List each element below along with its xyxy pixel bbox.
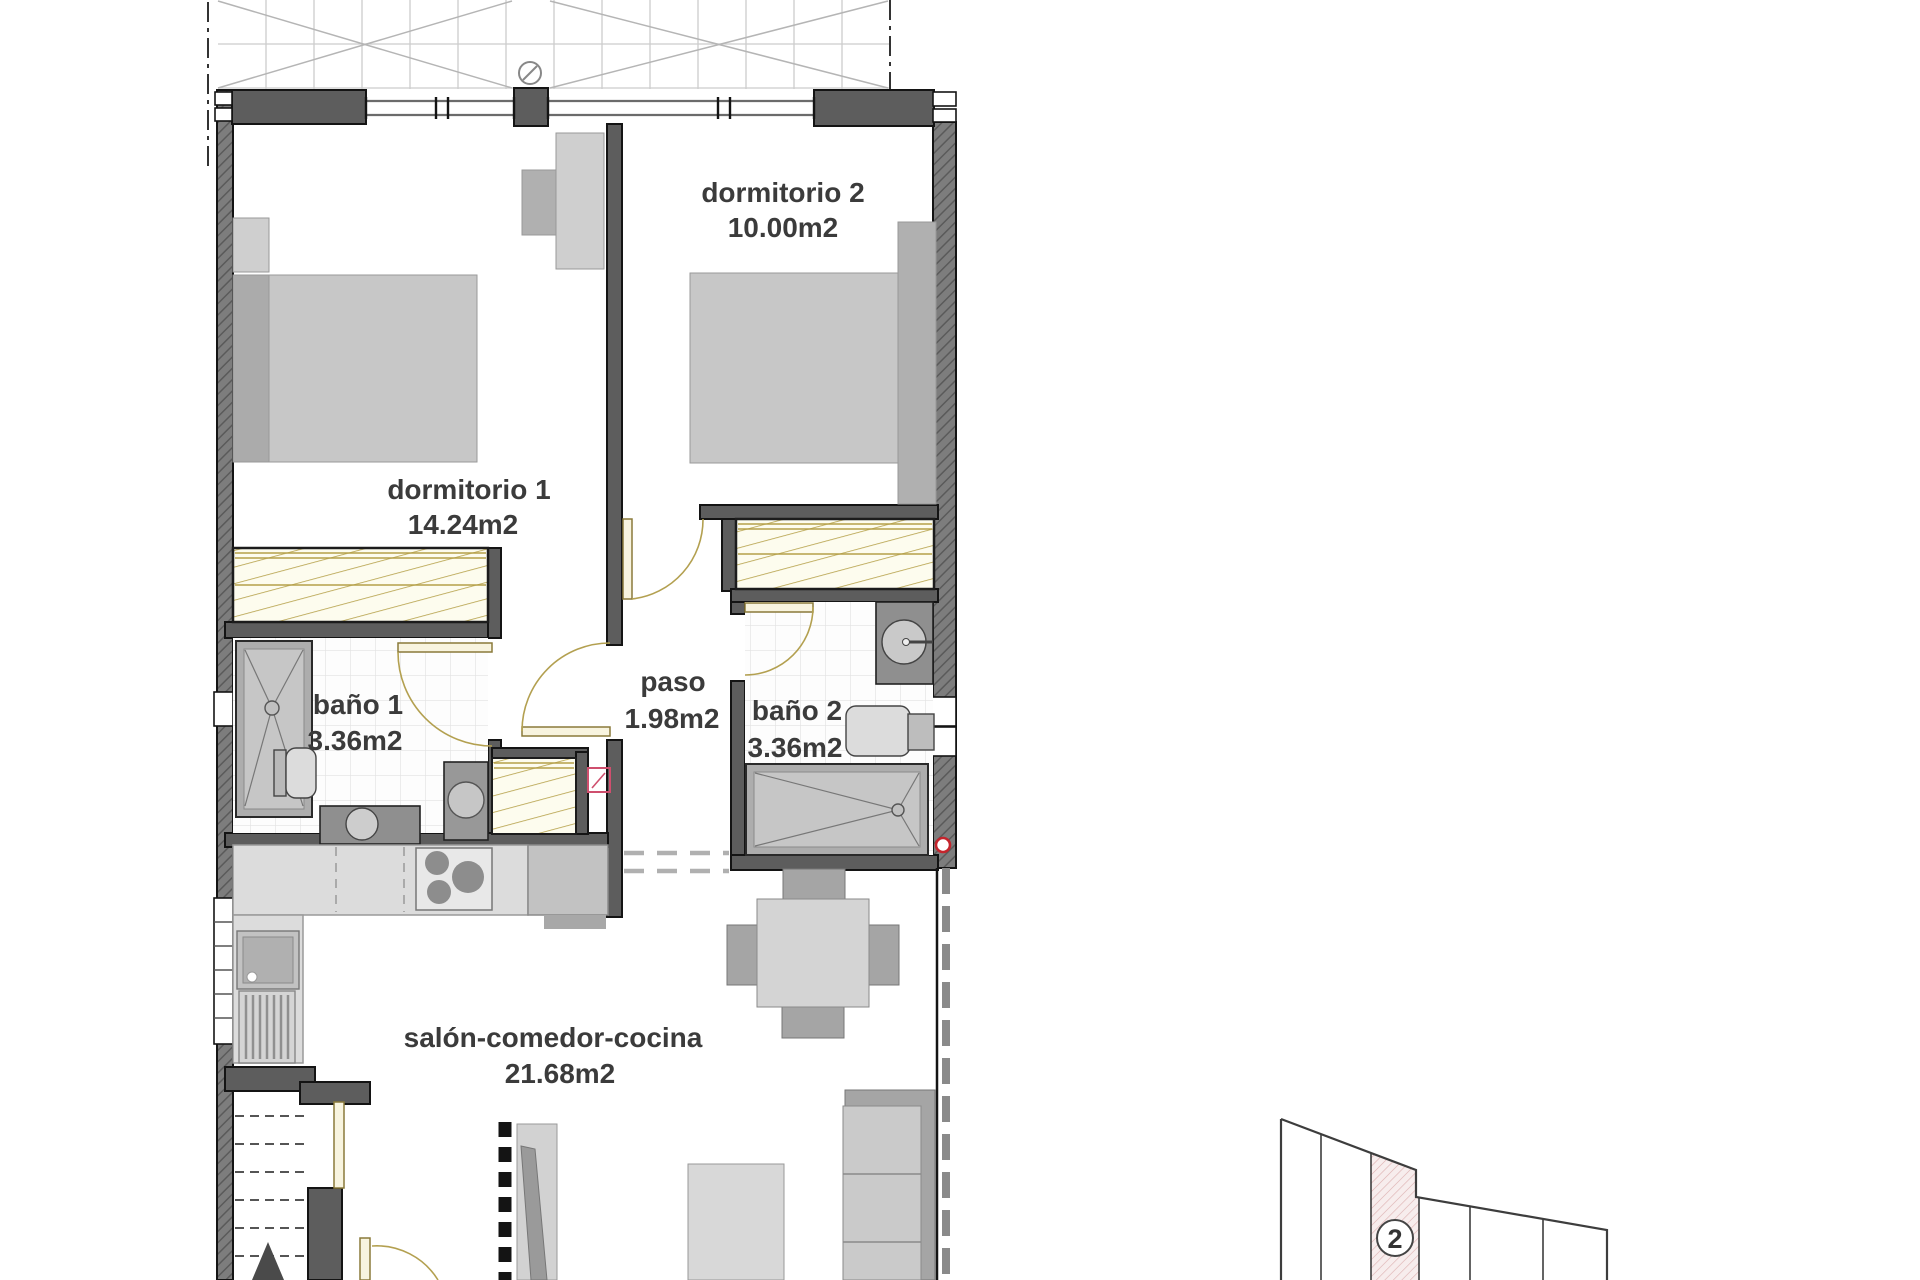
hall-area: 1.98m2 <box>625 703 720 734</box>
wardrobe2-left-wall <box>722 519 736 591</box>
stair-side-wall <box>308 1188 342 1280</box>
unit-number: 2 <box>1387 1224 1402 1254</box>
bathroom2-toilet <box>846 706 934 756</box>
facade-windows <box>366 97 814 119</box>
living-area: 21.68m2 <box>505 1058 616 1089</box>
bathroom1-basin <box>320 806 420 844</box>
dining-table <box>757 899 869 1007</box>
kitchen-grille-appliance <box>239 991 295 1063</box>
left-exterior-wall <box>217 90 233 1280</box>
bathroom1-window <box>214 692 233 726</box>
top-wall-left-segment <box>232 90 366 124</box>
hall-label: paso <box>640 666 705 697</box>
coffee-table <box>688 1164 784 1280</box>
bedroom1-area: 14.24m2 <box>408 509 519 540</box>
bedroom2-door <box>623 519 703 599</box>
sofa-seats <box>843 1106 921 1280</box>
closet-top-wall <box>492 748 588 758</box>
site-plan-key: 2 <box>1281 1119 1607 1280</box>
site-outline-top <box>1281 1119 1607 1280</box>
bathroom2-label: baño 2 <box>752 695 842 726</box>
top-right-notch-2 <box>933 109 956 122</box>
stair-top-wall-b <box>300 1082 370 1104</box>
shower-drain-icon <box>892 804 904 816</box>
right-boundary <box>936 838 950 1280</box>
floorplan-page: dormitorio 2 10.00m2 dormitorio 1 14.24m… <box>0 0 1920 1280</box>
bathroom1-area: 3.36m2 <box>308 725 403 756</box>
bedroom1-desk <box>556 133 604 269</box>
dining-chair-right <box>869 925 899 985</box>
entry-door <box>360 1238 438 1280</box>
stair-direction-arrow-icon <box>252 1242 284 1280</box>
top-left-notch <box>215 92 232 105</box>
top-wall-center-post <box>514 88 548 126</box>
bedroom2-label: dormitorio 2 <box>701 177 864 208</box>
bedroom2-bottom-wall <box>700 505 938 519</box>
wardrobe1-right-wall <box>488 548 501 638</box>
bathroom1-label: baño 1 <box>313 689 403 720</box>
stair-treads <box>235 1116 308 1256</box>
kitchen-louver-window <box>214 898 233 1044</box>
dining-table-set <box>727 869 899 1038</box>
bedroom1-label: dormitorio 1 <box>387 474 550 505</box>
bedroom2-area: 10.00m2 <box>728 212 839 243</box>
terrace <box>208 0 890 168</box>
red-marker-icon <box>936 838 950 852</box>
bedroom1-chair <box>522 170 556 235</box>
bathroom2-area: 3.36m2 <box>748 732 843 763</box>
bedroom1-headboard <box>233 275 269 462</box>
bathroom2-basin <box>876 602 933 684</box>
floorplan-drawing: dormitorio 2 10.00m2 dormitorio 1 14.24m… <box>0 0 1920 1280</box>
top-wall-right-segment <box>814 90 934 126</box>
site-unit-dividers <box>1321 1134 1543 1280</box>
stair-handrail <box>334 1102 344 1188</box>
kitchen-cabinet <box>528 845 608 915</box>
bath2-left-wall-stub <box>731 602 745 614</box>
sofa <box>843 1090 935 1280</box>
kitchen-cabinet-shadow <box>544 915 606 929</box>
highlighted-unit <box>1371 1153 1419 1280</box>
dining-chair-bottom <box>782 1007 844 1038</box>
bedroom2 <box>690 222 936 504</box>
closet-right-wall <box>576 752 588 834</box>
bathroom1-washer <box>444 762 488 840</box>
bedroom2-headboard <box>898 222 936 504</box>
wardrobe-bedroom2 <box>736 519 934 589</box>
dining-chair-top <box>783 869 845 899</box>
shower-drain-icon <box>265 701 279 715</box>
bedroom1 <box>233 133 604 462</box>
bath2-left-wall <box>731 681 745 855</box>
bedroom2-bed <box>690 273 900 463</box>
wardrobe-bedroom1 <box>233 548 488 622</box>
bathroom2-shower <box>746 764 928 855</box>
bedroom1-bed <box>235 275 477 462</box>
bath2-bottom-wall <box>731 855 938 870</box>
top-left-notch-2 <box>215 108 232 121</box>
top-right-notch <box>933 92 956 106</box>
kitchen-sink-unit <box>237 931 299 989</box>
living-label: salón-comedor-cocina <box>404 1022 703 1053</box>
bathroom2 <box>745 602 934 855</box>
ceiling-change-dashed <box>624 853 729 871</box>
hall-closet <box>492 758 576 834</box>
bedroom1-nightstand <box>233 218 269 272</box>
wardrobe2-bottom-wall <box>731 589 938 602</box>
bedroom1-door <box>522 643 610 736</box>
central-wall-lower <box>607 740 622 917</box>
dining-chair-left <box>727 925 757 985</box>
central-wall-upper <box>607 124 622 645</box>
kitchen-hob <box>416 848 492 910</box>
bedroom1-bottom-wall <box>225 622 501 638</box>
